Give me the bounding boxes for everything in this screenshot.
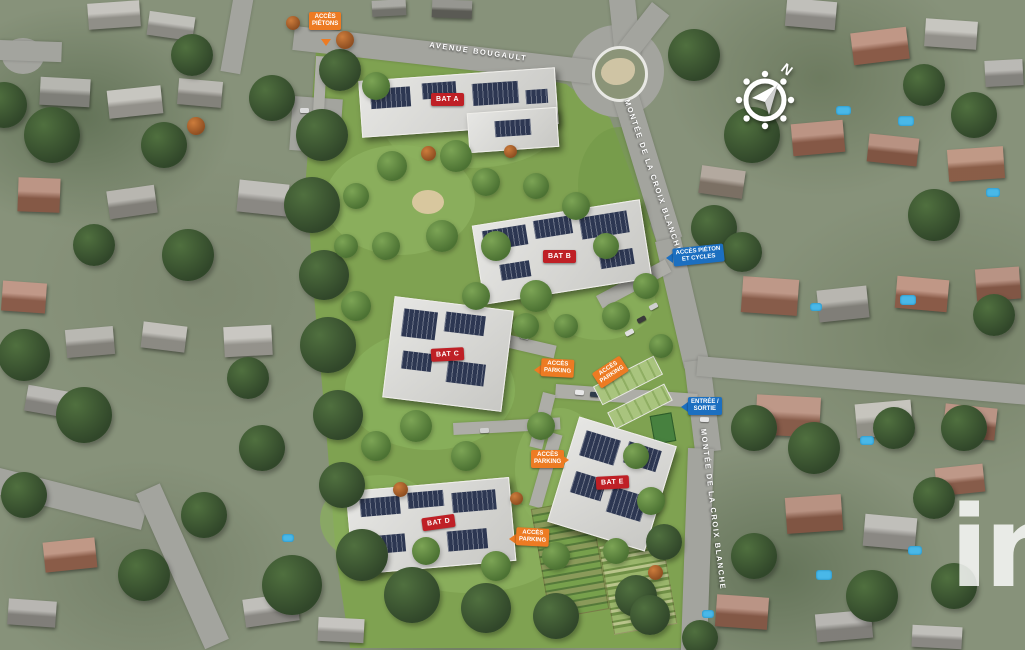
house-roof [984, 59, 1023, 87]
solar-panel [451, 489, 497, 513]
tree-canopy [73, 224, 115, 266]
tree-canopy [249, 75, 295, 121]
tree-canopy [384, 567, 440, 623]
tree-canopy [722, 232, 762, 272]
road-segment [0, 40, 62, 62]
house-roof [7, 598, 57, 627]
aerial-masterplan: AVENUE BOUGAULT MONTÉE DE LA CROIX BLANC… [0, 0, 1025, 650]
tree-canopy [788, 422, 840, 474]
tree-canopy [603, 538, 629, 564]
tree-canopy [562, 192, 590, 220]
solar-panel [494, 119, 531, 137]
tree-canopy [623, 443, 649, 469]
house-roof [867, 133, 920, 166]
access-label-parking-center: ACCÈS PARKING [531, 450, 564, 468]
swimming-pool [898, 116, 914, 126]
tree-canopy [873, 407, 915, 449]
tree-canopy [513, 313, 539, 339]
tree-canopy [141, 122, 187, 168]
tree-canopy [593, 233, 619, 259]
house-roof [698, 165, 745, 199]
house-roof [816, 285, 869, 322]
access-label-pietons-top: ACCÈS PIÉTONS [309, 12, 341, 30]
tree-canopy [481, 231, 511, 261]
tree-canopy [973, 294, 1015, 336]
house-roof [87, 0, 141, 30]
building-label-bat-e: BAT E [596, 475, 630, 490]
swimming-pool [816, 570, 832, 580]
tree-canopy-autumn [393, 482, 408, 497]
tree-canopy [426, 220, 458, 252]
tree-canopy-autumn [421, 146, 436, 161]
tree-canopy [336, 529, 388, 581]
tree-canopy [341, 291, 371, 321]
house-roof [785, 0, 837, 30]
house-roof [107, 85, 164, 118]
tree-canopy [941, 405, 987, 451]
pointer-left-icon [681, 402, 688, 412]
house-roof [715, 594, 769, 630]
house-roof [43, 537, 98, 572]
access-label-parking-west: ACCÈS PARKING [541, 358, 575, 378]
building-label-bat-a: BAT A [431, 93, 464, 106]
tree-canopy-autumn [336, 31, 354, 49]
solar-panel [447, 528, 489, 551]
house-roof [1, 281, 47, 314]
tree-canopy [533, 593, 579, 639]
tree-canopy [319, 462, 365, 508]
house-roof [741, 276, 799, 316]
tree-canopy [649, 334, 673, 358]
house-roof [236, 179, 289, 216]
tree-canopy [846, 570, 898, 622]
tree-canopy [227, 357, 269, 399]
tree-canopy [554, 314, 578, 338]
tree-canopy [300, 317, 356, 373]
tree-canopy [296, 109, 348, 161]
solar-panel [359, 496, 400, 517]
tree-canopy [731, 405, 777, 451]
tree-canopy [372, 232, 400, 260]
tree-canopy [637, 487, 665, 515]
house-roof [317, 617, 364, 643]
tree-canopy [462, 282, 490, 310]
solar-panel [472, 81, 519, 106]
house-roof [177, 78, 223, 108]
tree-canopy [343, 183, 369, 209]
solar-panel [579, 430, 621, 465]
house-roof [850, 27, 909, 66]
tree-canopy [682, 620, 718, 650]
tree-canopy [299, 250, 349, 300]
house-roof [863, 514, 918, 550]
pointer-right-icon [562, 455, 569, 465]
building-label-bat-c: BAT C [431, 347, 465, 362]
solar-panel [533, 215, 573, 239]
swimming-pool [860, 436, 874, 445]
tree-canopy [451, 441, 481, 471]
tree-canopy [520, 280, 552, 312]
house-roof [17, 177, 60, 212]
swimming-pool [810, 303, 822, 311]
swimming-pool [900, 295, 916, 305]
house-roof [65, 326, 115, 358]
tree-canopy-autumn [510, 492, 523, 505]
tree-canopy [633, 273, 659, 299]
tree-canopy [646, 524, 682, 560]
tree-canopy [630, 595, 670, 635]
tree-canopy [361, 431, 391, 461]
car [575, 390, 584, 396]
tree-canopy [239, 425, 285, 471]
pointer-down-icon [321, 39, 331, 46]
watermark-logo: in [950, 492, 1025, 604]
solar-panel [407, 490, 444, 509]
tree-canopy [400, 410, 432, 442]
tree-canopy [908, 189, 960, 241]
tree-canopy [461, 583, 511, 633]
solar-panel [499, 260, 531, 280]
swimming-pool [282, 534, 294, 542]
tree-canopy [1, 472, 47, 518]
tree-canopy [523, 173, 549, 199]
tree-canopy [334, 234, 358, 258]
tree-canopy [56, 387, 112, 443]
tree-canopy [913, 477, 955, 519]
swimming-pool [908, 546, 922, 555]
house-roof [785, 494, 843, 534]
tree-canopy [731, 533, 777, 579]
tree-canopy [24, 107, 80, 163]
house-roof [911, 625, 962, 650]
house-roof [895, 276, 950, 312]
house-roof [924, 18, 978, 50]
tree-canopy [527, 412, 555, 440]
house-roof [223, 325, 273, 357]
solar-panel [444, 311, 486, 336]
house-roof [432, 0, 473, 19]
tree-canopy-autumn [187, 117, 205, 135]
tree-canopy-autumn [504, 145, 517, 158]
tree-canopy [181, 492, 227, 538]
house-roof [791, 120, 846, 156]
tree-canopy [951, 92, 997, 138]
tree-canopy [472, 168, 500, 196]
car [480, 428, 489, 433]
swimming-pool [702, 610, 714, 618]
tree-canopy [262, 555, 322, 615]
house-roof [39, 77, 90, 108]
house-roof [372, 0, 407, 17]
tree-canopy [313, 390, 363, 440]
tree-canopy [481, 551, 511, 581]
tree-canopy [118, 549, 170, 601]
tree-canopy [284, 177, 340, 233]
solar-panel [525, 89, 548, 105]
solar-panel [401, 308, 438, 340]
tree-canopy-autumn [648, 565, 663, 580]
building-label-bat-b: BAT B [543, 250, 576, 263]
tree-canopy [377, 151, 407, 181]
access-label-entree-sortie: ENTRÉE / SORTIE [688, 397, 722, 415]
tree-canopy [319, 49, 361, 91]
tree-canopy [171, 34, 213, 76]
tree-canopy [440, 140, 472, 172]
tree-canopy [162, 229, 214, 281]
solar-panel [401, 351, 433, 373]
compass-icon: N [733, 54, 797, 132]
tree-canopy [903, 64, 945, 106]
car [700, 417, 709, 422]
tree-canopy [602, 302, 630, 330]
solar-panel [446, 360, 486, 386]
tree-canopy [0, 329, 50, 381]
compass-north-label: N [778, 60, 796, 79]
swimming-pool [836, 106, 851, 115]
access-label-parking-south: ACCÈS PARKING [516, 527, 550, 547]
house-roof [141, 321, 188, 352]
house-roof [947, 146, 1005, 182]
tree-canopy [668, 29, 720, 81]
swimming-pool [986, 188, 1000, 197]
tree-canopy-autumn [286, 16, 300, 30]
tree-canopy [412, 537, 440, 565]
tree-canopy [362, 72, 390, 100]
